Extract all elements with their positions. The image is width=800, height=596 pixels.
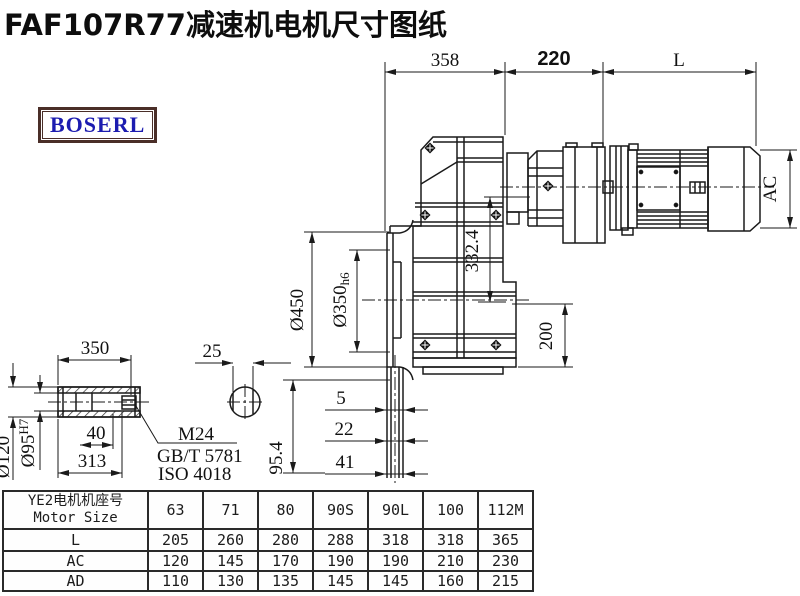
row-label-L: L: [3, 529, 148, 551]
cell: 145: [368, 571, 423, 591]
cell: 160: [423, 571, 478, 591]
center-lines: [48, 187, 774, 483]
label-thread-m24: M24: [178, 424, 214, 445]
bolt-markers: [420, 143, 554, 351]
col-frame-90S: 90S: [313, 491, 368, 529]
col-frame-90L: 90L: [368, 491, 423, 529]
dim-shaft-95H7: Ø95H7: [16, 418, 39, 467]
table-header-motor-size: YE2电机机座号 Motor Size: [3, 491, 148, 529]
cell: 135: [258, 571, 313, 591]
cell: 110: [148, 571, 203, 591]
col-frame-63: 63: [148, 491, 203, 529]
dim-shaft-25: 25: [203, 341, 222, 362]
dim-350h6: Ø350h6: [330, 272, 352, 328]
dim-L: L: [673, 50, 685, 71]
cell: 215: [478, 571, 533, 591]
dim-AC: AC: [760, 176, 781, 202]
cell: 318: [368, 529, 423, 551]
dim-332-4: 332.4: [462, 229, 483, 272]
table-header-cn: YE2电机机座号: [4, 493, 147, 510]
dim-95-4: 95.4: [266, 441, 287, 475]
motor: [610, 144, 760, 235]
dim-shaft-350: 350: [81, 338, 110, 359]
row-label-AC: AC: [3, 551, 148, 571]
cell: 280: [258, 529, 313, 551]
table-header-en: Motor Size: [4, 510, 147, 527]
dim-200: 200: [536, 322, 557, 351]
dim-450: Ø450: [287, 289, 308, 331]
cell: 190: [313, 551, 368, 571]
dim-22: 22: [335, 419, 354, 440]
dim-220: 220: [537, 48, 570, 70]
motor-size-table: YE2电机机座号 Motor Size 63 71 80 90S 90L 100…: [2, 490, 534, 592]
output-flange: [387, 220, 413, 478]
cell: 130: [203, 571, 258, 591]
cell: 190: [368, 551, 423, 571]
col-frame-80: 80: [258, 491, 313, 529]
cell: 205: [148, 529, 203, 551]
table-row-L: L 205 260 280 288 318 318 365: [3, 529, 533, 551]
cell: 288: [313, 529, 368, 551]
dim-shaft-313: 313: [78, 451, 107, 472]
dim-shaft-40: 40: [87, 423, 106, 444]
cell: 145: [313, 571, 368, 591]
table-row-AD: AD 110 130 135 145 145 160 215: [3, 571, 533, 591]
cell: 260: [203, 529, 258, 551]
table-row-AC: AC 120 145 170 190 190 210 230: [3, 551, 533, 571]
col-frame-100: 100: [423, 491, 478, 529]
cell: 318: [423, 529, 478, 551]
dim-shaft-120: Ø120: [0, 436, 14, 478]
dim-41: 41: [336, 452, 355, 473]
cell: 120: [148, 551, 203, 571]
cell: 145: [203, 551, 258, 571]
cell: 170: [258, 551, 313, 571]
col-frame-112M: 112M: [478, 491, 533, 529]
cell: 365: [478, 529, 533, 551]
row-label-AD: AD: [3, 571, 148, 591]
cell: 230: [478, 551, 533, 571]
drawing-sheet: FAF107R77减速机电机尺寸图纸 BOSERL: [0, 0, 800, 596]
dim-5: 5: [336, 388, 346, 409]
label-std-iso: ISO 4018: [158, 464, 231, 485]
input-adapter: [507, 143, 613, 243]
col-frame-71: 71: [203, 491, 258, 529]
dim-358: 358: [431, 50, 460, 71]
cell: 210: [423, 551, 478, 571]
